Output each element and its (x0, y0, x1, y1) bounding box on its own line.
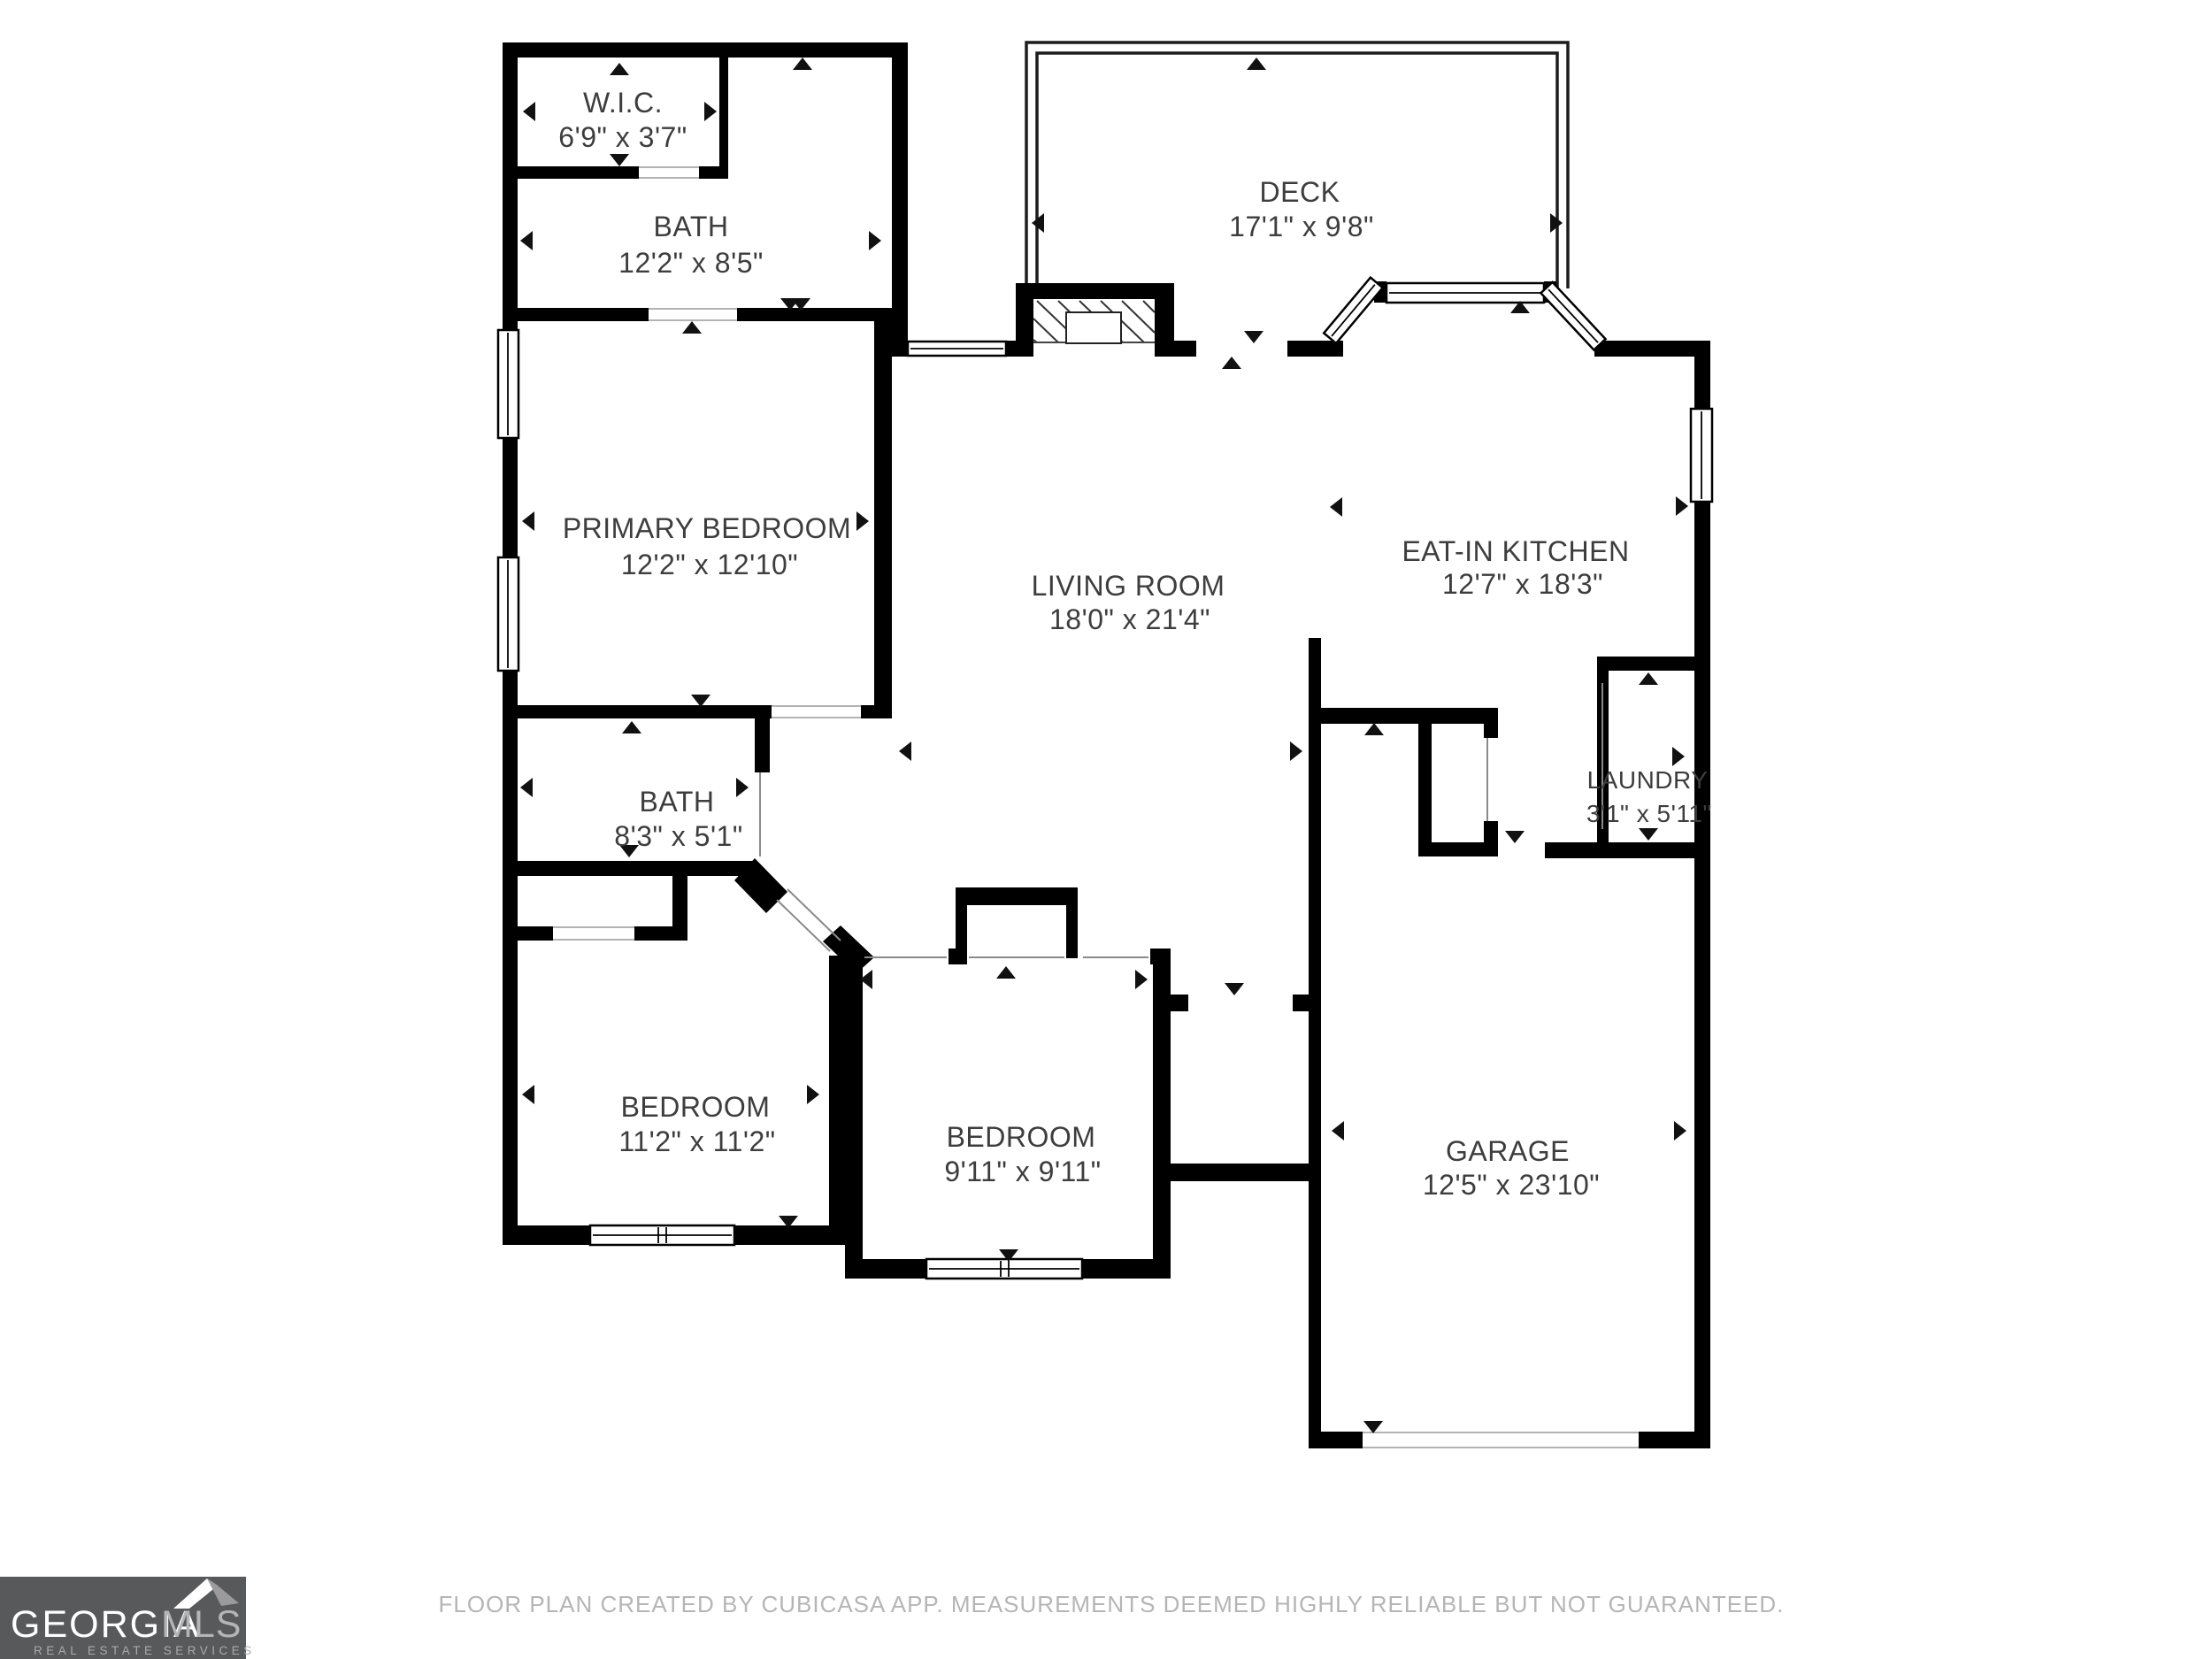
room-dims-deck: 17'1" x 9'8" (1229, 211, 1374, 242)
room-label-primary-bedroom: PRIMARY BEDROOM (563, 512, 851, 544)
room-label-bedroom-right: BEDROOM (947, 1121, 1096, 1153)
window-icon (1691, 409, 1712, 502)
room-label-deck: DECK (1260, 176, 1340, 208)
room-label-bath-upper: BATH (654, 211, 729, 242)
room-dims-garage: 12'5" x 23'10" (1423, 1169, 1600, 1201)
room-dims-kitchen: 12'7" x 18'3" (1442, 568, 1603, 600)
room-label-kitchen: EAT-IN KITCHEN (1402, 535, 1629, 567)
footer-disclaimer: FLOOR PLAN CREATED BY CUBICASA APP. MEAS… (439, 1591, 1785, 1617)
window-icon (908, 342, 1006, 356)
fireplace (1033, 301, 1155, 343)
room-dims-bath-upper: 12'2" x 8'5" (618, 247, 764, 279)
window-icon (498, 330, 518, 438)
room-dims-laundry: 3'1" x 5'11" (1586, 800, 1712, 827)
window-icon (926, 1259, 1082, 1279)
room-label-garage: GARAGE (1446, 1135, 1570, 1167)
bay-window-icon (1324, 278, 1605, 350)
room-dims-bedroom-left: 11'2" x 11'2" (618, 1125, 775, 1157)
room-label-living-room: LIVING ROOM (1032, 570, 1225, 602)
door-openings (553, 166, 1639, 1450)
room-label-bedroom-left: BEDROOM (621, 1091, 771, 1123)
floorplan-page: W.I.C. 6'9" x 3'7" BATH 12'2" x 8'5" DEC… (0, 0, 2212, 1659)
room-labels: W.I.C. 6'9" x 3'7" BATH 12'2" x 8'5" DEC… (558, 87, 1712, 1201)
logo-tagline-text: REAL ESTATE SERVICES (34, 1644, 256, 1657)
deck-outline (1026, 42, 1568, 288)
window-icon (498, 557, 518, 671)
window-icon (590, 1225, 734, 1245)
logo-suffix-text: MLS (161, 1603, 242, 1646)
room-dims-wic: 6'9" x 3'7" (558, 121, 687, 153)
floor-plan-canvas: W.I.C. 6'9" x 3'7" BATH 12'2" x 8'5" DEC… (0, 0, 2212, 1659)
georgia-mls-logo: GEORGIA MLS REAL ESTATE SERVICES (0, 1577, 256, 1659)
room-dims-bedroom-right: 9'11" x 9'11" (944, 1156, 1101, 1187)
room-label-laundry: LAUNDRY (1587, 766, 1709, 794)
room-dims-bath-lower: 8'3" x 5'1" (614, 820, 742, 852)
room-label-bath-lower: BATH (640, 786, 715, 818)
room-label-wic: W.I.C. (583, 87, 663, 119)
room-dims-living-room: 18'0" x 21'4" (1049, 603, 1210, 635)
room-dims-primary-bedroom: 12'2" x 12'10" (621, 549, 798, 580)
